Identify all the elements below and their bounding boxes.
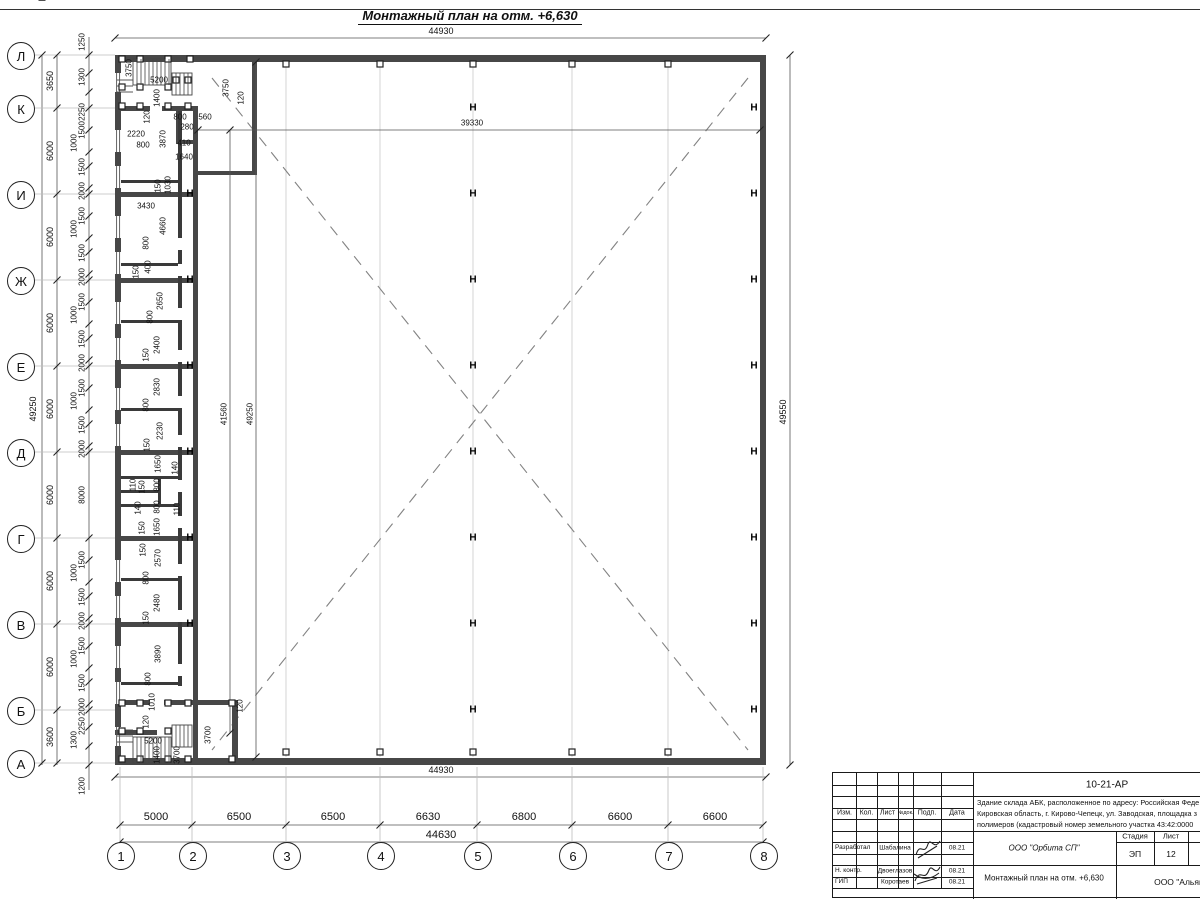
tb-date-1: 08.21 xyxy=(949,868,965,875)
dim-label: 2250 xyxy=(78,103,87,121)
dim-label: 800 xyxy=(142,236,151,249)
col-axis-bubble: 5 xyxy=(464,842,492,870)
tb-role-1: Н. контр. xyxy=(835,867,862,874)
row-axis-bubble: Б xyxy=(7,697,35,725)
dim-label: 800 xyxy=(136,141,149,150)
dim-label: 3700 xyxy=(173,746,182,764)
dim-label: 49550 xyxy=(778,399,788,424)
dim-label: 3750 xyxy=(222,79,231,97)
dim-label: 49250 xyxy=(246,403,255,425)
dim-label: 3650 xyxy=(45,71,55,91)
steel-column-symbol: Н xyxy=(750,533,757,544)
dim-label: 4660 xyxy=(159,217,168,235)
dim-label: 2650 xyxy=(156,292,165,310)
dim-label: 3700 xyxy=(204,726,213,744)
steel-column-symbol: Н xyxy=(750,275,757,286)
dim-label: 800 xyxy=(142,571,151,584)
dim-label: 1200 xyxy=(78,777,87,795)
steel-column-symbol: Н xyxy=(469,361,476,372)
row-axis-bubble: Ж xyxy=(7,267,35,295)
dim-label: 1000 xyxy=(70,650,79,668)
dim-label: 44630 xyxy=(426,829,457,841)
dim-label: 6000 xyxy=(45,485,55,505)
steel-column-symbol: Н xyxy=(750,705,757,716)
title-block: Изм. Кол. Лист №док. Подп. Дата Разработ… xyxy=(832,772,1200,898)
dim-label: 1500 xyxy=(78,158,87,176)
steel-column-symbol: Н xyxy=(469,619,476,630)
dim-label: 3600 xyxy=(45,727,55,747)
dim-label: 1500 xyxy=(78,330,87,348)
tb-header-izm: Изм. xyxy=(837,810,852,817)
dim-label: 150 xyxy=(154,179,163,192)
signature xyxy=(913,837,943,861)
dim-label: 140 xyxy=(171,461,180,474)
dim-label: 150 xyxy=(138,480,147,493)
steel-column-symbol: Н xyxy=(750,189,757,200)
tb-line xyxy=(833,888,973,889)
dim-label: 1500 xyxy=(78,244,87,262)
row-axis-bubble: И xyxy=(7,181,35,209)
tb-line xyxy=(833,796,973,797)
dim-label: 1000 xyxy=(70,220,79,238)
steel-column-symbol: Н xyxy=(750,619,757,630)
tb-date-2: 08.21 xyxy=(949,879,965,886)
dim-label: 110 xyxy=(173,503,182,516)
steel-column-symbol: Н xyxy=(750,447,757,458)
dim-label: 2230 xyxy=(156,422,165,440)
steel-column-symbol: Н xyxy=(469,533,476,544)
dim-label: 6000 xyxy=(45,657,55,677)
dim-label: 6500 xyxy=(321,811,345,823)
dim-label: 2000 xyxy=(78,698,87,716)
steel-column-symbol: Н xyxy=(469,705,476,716)
dim-label: 1650 xyxy=(153,518,162,536)
dim-label: 2000 xyxy=(78,268,87,286)
tb-sheet-label: Лист xyxy=(1163,832,1179,841)
row-axis-bubble: В xyxy=(7,611,35,639)
dim-label: 6000 xyxy=(45,313,55,333)
tb-org: ООО "Орбита СП" xyxy=(1008,844,1079,853)
dim-label: 2480 xyxy=(153,594,162,612)
dim-label: 39330 xyxy=(461,119,483,128)
col-axis-bubble: 6 xyxy=(559,842,587,870)
tb-desc-line3: полимеров (кадастровый номер земельного … xyxy=(977,820,1193,829)
dim-label: 120 xyxy=(143,110,152,123)
tb-line xyxy=(973,865,1200,866)
dim-label: 800 xyxy=(144,672,153,685)
steel-column-symbol: Н xyxy=(469,189,476,200)
tb-doc-title: Монтажный план на отм. +6,630 xyxy=(984,874,1104,883)
dim-label: 1640 xyxy=(175,153,193,162)
tb-line xyxy=(833,831,973,832)
col-axis-bubble: 2 xyxy=(179,842,207,870)
steel-column-symbol: Н xyxy=(186,619,193,630)
dim-label: 1500 xyxy=(78,588,87,606)
dim-label: 1300 xyxy=(78,68,87,86)
dim-label: 2000 xyxy=(78,612,87,630)
row-axis-bubble: Л xyxy=(7,42,35,70)
row-axis-bubble: Д xyxy=(7,439,35,467)
tb-name-2: Коротаев xyxy=(881,879,909,886)
tb-line xyxy=(973,796,1200,797)
dim-label: 1500 xyxy=(78,416,87,434)
dim-label: 1000 xyxy=(70,392,79,410)
tb-header-list: Лист xyxy=(880,810,895,817)
dim-label: 1500 xyxy=(78,207,87,225)
dim-label: 1500 xyxy=(78,121,87,139)
dim-label: 6800 xyxy=(512,811,536,823)
tb-header-ndok: №док. xyxy=(897,810,913,816)
col-axis-bubble: 7 xyxy=(655,842,683,870)
tb-stage-value: ЭП xyxy=(1129,849,1141,859)
dim-label: 1300 xyxy=(70,731,79,749)
dim-label: 120 xyxy=(236,699,245,712)
dim-label: 2220 xyxy=(127,130,145,139)
row-axis-bubble: Г xyxy=(7,525,35,553)
dim-label: 41560 xyxy=(220,403,229,425)
dim-label: 5200 xyxy=(150,76,168,85)
steel-column-symbol: Н xyxy=(469,447,476,458)
tb-header-podp: Подп. xyxy=(918,810,937,817)
dim-label: 560 xyxy=(198,113,211,122)
col-axis-bubble: 8 xyxy=(750,842,778,870)
dim-label: 1500 xyxy=(78,551,87,569)
dim-label: 800 xyxy=(153,478,162,491)
row-axis-bubble: К xyxy=(7,95,35,123)
tb-name-0: Шабалина xyxy=(879,845,910,852)
tb-name-1: Двоеглазов xyxy=(878,868,913,875)
dim-label: 150 xyxy=(138,521,147,534)
dim-label: 150 xyxy=(142,348,151,361)
dim-label: 2570 xyxy=(154,549,163,567)
dim-label: 410 xyxy=(177,139,190,148)
dim-label: 1500 xyxy=(78,293,87,311)
dim-label: 150 xyxy=(132,265,141,278)
col-axis-bubble: 4 xyxy=(367,842,395,870)
tb-line xyxy=(833,808,973,809)
tb-line xyxy=(833,785,973,786)
col-axis-bubble: 3 xyxy=(273,842,301,870)
plan-annotations: ЛКИЖЕДГВБА12345678НННННННННННННННННННННН… xyxy=(0,0,1200,900)
dim-label: 280 xyxy=(180,123,193,132)
dim-label: 120 xyxy=(237,91,246,104)
tb-line xyxy=(1188,831,1189,866)
dim-label: 44930 xyxy=(428,765,453,775)
tb-line xyxy=(833,877,973,878)
dim-label: 800 xyxy=(153,500,162,513)
tb-header-kol: Кол. xyxy=(860,810,874,817)
tb-sheet-value: 12 xyxy=(1166,849,1175,859)
dim-label: 1000 xyxy=(70,306,79,324)
dim-label: 1000 xyxy=(70,564,79,582)
tb-line xyxy=(833,819,973,820)
steel-column-symbol: Н xyxy=(186,533,193,544)
steel-column-symbol: Н xyxy=(750,103,757,114)
dim-label: 140 xyxy=(134,501,143,514)
dim-label: 6000 xyxy=(45,227,55,247)
tb-line xyxy=(833,842,973,843)
tb-line xyxy=(833,854,973,855)
row-axis-bubble: А xyxy=(7,750,35,778)
dim-label: 120 xyxy=(142,715,151,728)
dim-label: 5200 xyxy=(144,737,162,746)
dim-label: 2000 xyxy=(78,354,87,372)
tb-stage-label: Стадия xyxy=(1122,832,1148,841)
drawing-sheet: Монтажный план на отм. +6,630 xyxy=(0,0,1200,900)
steel-column-symbol: Н xyxy=(469,103,476,114)
dim-label: 49250 xyxy=(28,396,38,421)
dim-label: 5000 xyxy=(144,811,168,823)
dim-label: 800 xyxy=(142,398,151,411)
dim-label: 3890 xyxy=(154,645,163,663)
dim-label: 6000 xyxy=(45,571,55,591)
dim-label: 1030 xyxy=(164,176,173,194)
tb-role-0: Разработал xyxy=(835,844,870,851)
dim-label: 1010 xyxy=(148,693,157,711)
dim-label: 6600 xyxy=(608,811,632,823)
dim-label: 6500 xyxy=(227,811,251,823)
dim-label: 150 xyxy=(143,438,152,451)
steel-column-symbol: Н xyxy=(186,447,193,458)
dim-label: 2250 xyxy=(78,717,87,735)
dim-label: 1500 xyxy=(78,674,87,692)
dim-label: 110 xyxy=(129,479,138,492)
tb-desc-line2: Кировская область, г. Кирово-Чепецк, ул.… xyxy=(977,809,1197,818)
col-axis-bubble: 1 xyxy=(107,842,135,870)
dim-label: 44930 xyxy=(428,26,453,36)
row-axis-bubble: Е xyxy=(7,353,35,381)
signature xyxy=(911,861,943,887)
dim-label: 800 xyxy=(146,310,155,323)
dim-label: 150 xyxy=(139,543,148,556)
steel-column-symbol: Н xyxy=(186,189,193,200)
dim-label: 6600 xyxy=(703,811,727,823)
dim-label: 2400 xyxy=(153,336,162,354)
steel-column-symbol: Н xyxy=(186,275,193,286)
dim-label: 2000 xyxy=(78,182,87,200)
dim-label: 150 xyxy=(142,611,151,624)
tb-date-0: 08.21 xyxy=(949,845,965,852)
tb-section-divider xyxy=(973,773,974,899)
dim-label: 1500 xyxy=(78,379,87,397)
dim-label: 1500 xyxy=(78,637,87,655)
tb-desc-line1: Здание склада АБК, расположенное по адре… xyxy=(977,798,1199,807)
dim-label: 1650 xyxy=(154,455,163,473)
tb-doc-code: 10-21-АР xyxy=(1086,779,1128,790)
tb-role-2: ГИП xyxy=(835,878,848,885)
tb-line xyxy=(1116,831,1117,900)
dim-label: 3750 xyxy=(125,59,134,77)
steel-column-symbol: Н xyxy=(750,361,757,372)
tb-line xyxy=(833,865,973,866)
dim-label: 1250 xyxy=(78,33,87,51)
dim-label: 6000 xyxy=(45,141,55,161)
dim-label: 6630 xyxy=(416,811,440,823)
tb-line xyxy=(1154,831,1155,866)
steel-column-symbol: Н xyxy=(186,361,193,372)
tb-company: ООО "Альянс xyxy=(1154,877,1200,887)
dim-label: 400 xyxy=(144,260,153,273)
dim-label: 1400 xyxy=(153,746,162,764)
dim-label: 2000 xyxy=(78,440,87,458)
steel-column-symbol: Н xyxy=(469,275,476,286)
dim-label: 8000 xyxy=(78,486,87,504)
dim-label: 3870 xyxy=(159,130,168,148)
dim-label: 1400 xyxy=(153,89,162,107)
tb-header-data: Дата xyxy=(949,810,965,817)
tb-line xyxy=(1116,842,1200,843)
dim-label: 3430 xyxy=(137,202,155,211)
dim-label: 2830 xyxy=(153,378,162,396)
dim-label: 800 xyxy=(173,113,186,122)
dim-label: 1000 xyxy=(70,134,79,152)
dim-label: 6000 xyxy=(45,399,55,419)
